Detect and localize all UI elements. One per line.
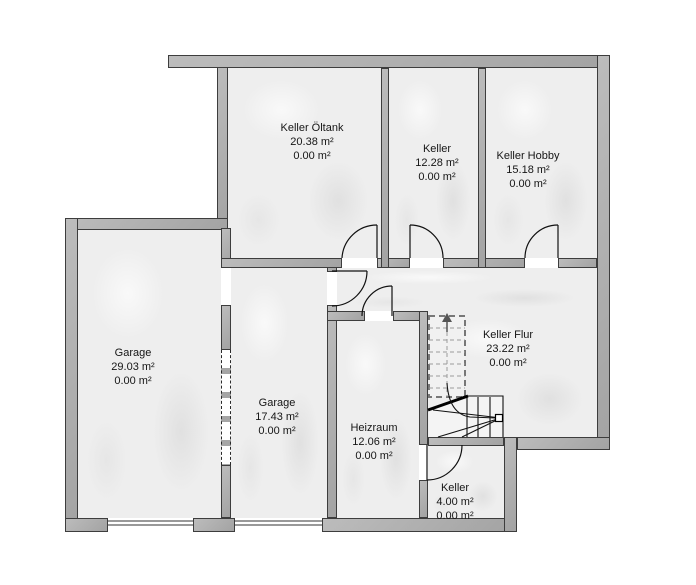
door-heizraum <box>362 286 392 316</box>
label-keller-small: Keller 4.00 m² 0.00 m² <box>385 481 525 523</box>
room-name: Keller Hobby <box>458 149 598 163</box>
room-name: Keller Flur <box>438 328 578 342</box>
garage-door-small <box>235 521 322 525</box>
label-heizraum: Heizraum 12.06 m² 0.00 m² <box>304 421 444 463</box>
plan-linework <box>0 0 696 585</box>
label-keller-flur: Keller Flur 23.22 m² 0.00 m² <box>438 328 578 370</box>
door-keller-mid <box>410 225 443 258</box>
room-area-secondary: 0.00 m² <box>304 449 444 463</box>
room-name: Heizraum <box>304 421 444 435</box>
garage-door-large <box>108 521 193 525</box>
label-garage-large: Garage 29.03 m² 0.00 m² <box>63 346 203 388</box>
door-keller-oeltank <box>342 225 377 258</box>
room-area: 23.22 m² <box>438 342 578 356</box>
room-area: 12.06 m² <box>304 435 444 449</box>
room-area: 15.18 m² <box>458 163 598 177</box>
room-area-secondary: 0.00 m² <box>458 177 598 191</box>
room-name: Keller Öltank <box>242 121 382 135</box>
label-keller-oeltank: Keller Öltank 20.38 m² 0.00 m² <box>242 121 382 163</box>
room-area: 4.00 m² <box>385 495 525 509</box>
room-area-secondary: 0.00 m² <box>63 374 203 388</box>
floor-plan-basement: Keller Öltank 20.38 m² 0.00 m² Keller 12… <box>0 0 696 585</box>
room-area: 29.03 m² <box>63 360 203 374</box>
room-area-secondary: 0.00 m² <box>242 149 382 163</box>
stair-newel-post <box>496 415 503 422</box>
door-keller-hobby <box>525 225 558 258</box>
room-area-secondary: 0.00 m² <box>385 509 525 523</box>
label-keller-hobby: Keller Hobby 15.18 m² 0.00 m² <box>458 149 598 191</box>
room-area: 20.38 m² <box>242 135 382 149</box>
door-garage-flur <box>332 271 367 306</box>
room-name: Garage <box>63 346 203 360</box>
room-name: Garage <box>207 396 347 410</box>
room-area-secondary: 0.00 m² <box>438 356 578 370</box>
room-name: Keller <box>385 481 525 495</box>
